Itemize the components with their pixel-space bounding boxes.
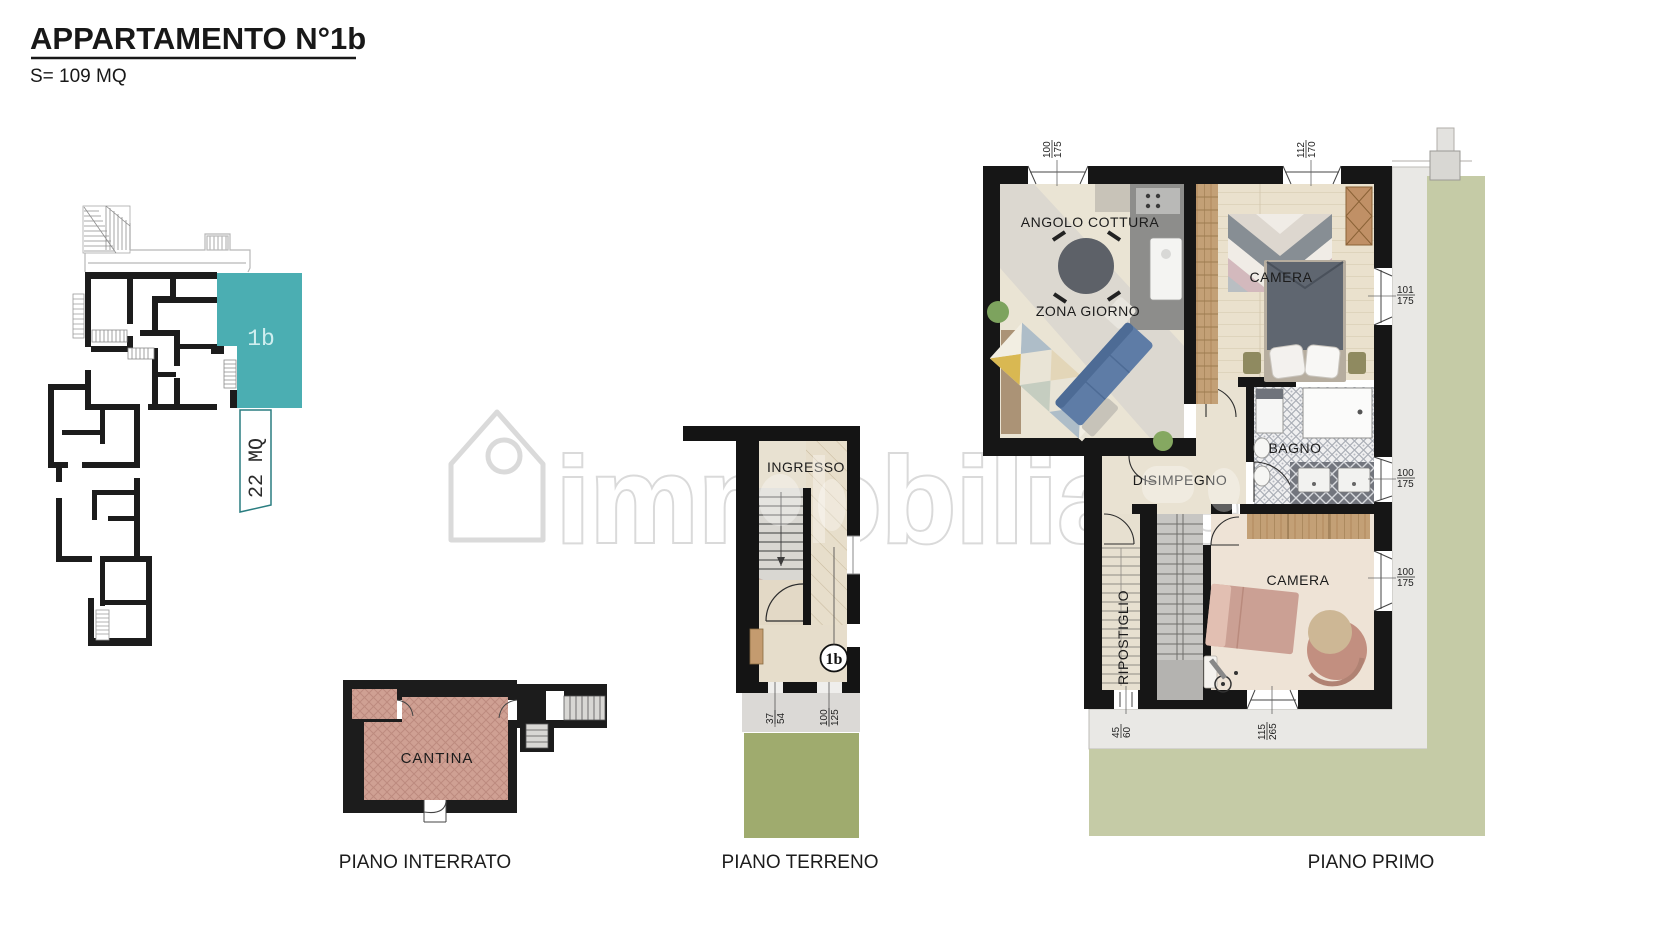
svg-text:265: 265 xyxy=(1268,723,1279,740)
svg-text:CANTINA: CANTINA xyxy=(401,750,474,767)
svg-text:RIPOSTIGLIO: RIPOSTIGLIO xyxy=(1115,590,1131,685)
svg-text:37: 37 xyxy=(765,712,776,724)
svg-text:175: 175 xyxy=(1397,296,1414,307)
svg-text:PIANO TERRENO: PIANO TERRENO xyxy=(722,852,879,873)
svg-text:54: 54 xyxy=(776,712,787,724)
svg-text:45: 45 xyxy=(1111,726,1122,738)
svg-text:S= 109 MQ: S= 109 MQ xyxy=(30,66,127,87)
svg-text:1b: 1b xyxy=(247,326,275,352)
svg-text:100: 100 xyxy=(1397,468,1414,479)
svg-text:112: 112 xyxy=(1296,142,1307,158)
svg-text:125: 125 xyxy=(830,709,841,726)
svg-text:APPARTAMENTO N°1b: APPARTAMENTO N°1b xyxy=(30,21,366,56)
svg-text:22 MQ: 22 MQ xyxy=(246,438,269,498)
svg-text:PIANO PRIMO: PIANO PRIMO xyxy=(1308,852,1435,873)
svg-text:PIANO INTERRATO: PIANO INTERRATO xyxy=(339,852,511,873)
svg-text:175: 175 xyxy=(1397,479,1414,490)
svg-text:175: 175 xyxy=(1397,578,1414,589)
svg-text:INGRESSO: INGRESSO xyxy=(767,459,845,475)
svg-text:100: 100 xyxy=(1397,567,1414,578)
svg-text:ANGOLO COTTURA: ANGOLO COTTURA xyxy=(1021,214,1160,230)
svg-text:60: 60 xyxy=(1122,726,1133,738)
svg-text:175: 175 xyxy=(1053,141,1064,158)
svg-text:101: 101 xyxy=(1397,285,1414,296)
svg-text:BAGNO: BAGNO xyxy=(1268,440,1321,456)
svg-text:CAMERA: CAMERA xyxy=(1250,269,1313,285)
svg-text:100: 100 xyxy=(1042,141,1053,158)
svg-text:100: 100 xyxy=(819,709,830,726)
svg-text:CAMERA: CAMERA xyxy=(1267,572,1330,588)
svg-text:ZONA GIORNO: ZONA GIORNO xyxy=(1036,303,1140,319)
svg-text:1b: 1b xyxy=(826,651,843,668)
svg-text:170: 170 xyxy=(1307,141,1318,158)
svg-text:115: 115 xyxy=(1257,724,1268,740)
